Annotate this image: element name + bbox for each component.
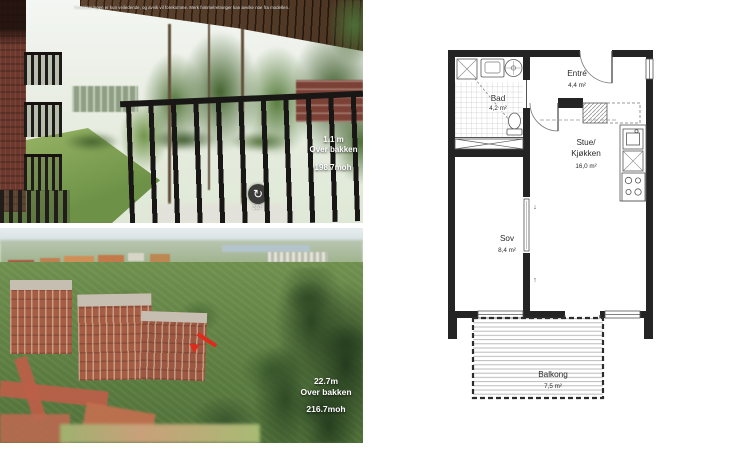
- height-value: 22.7m: [293, 376, 359, 387]
- height-caption: Over bakken: [305, 145, 362, 155]
- aerial-fjord: [222, 245, 310, 252]
- balcony-view-photo[interactable]: Visualiseringen er kun veiledende, og av…: [0, 0, 363, 223]
- wardrobes: [540, 103, 640, 123]
- neighbor-building-facade: [0, 0, 26, 212]
- room-area-entre: 4,4 m²: [568, 82, 586, 89]
- distant-buildings-row: [268, 252, 328, 262]
- neighbor-balcony: [24, 52, 62, 85]
- distant-building: [128, 253, 144, 261]
- foliage-over-roof: [318, 0, 363, 84]
- room-area-balkong: 7,5 m²: [544, 383, 562, 390]
- height-above-ground-label: 1.1 m Over bakken: [305, 135, 362, 155]
- elevation-label: 198.7moh: [303, 163, 363, 173]
- balcony-railing-bars: [126, 94, 363, 223]
- interior-door: [530, 103, 558, 131]
- room-area-sov: 8,4 m²: [498, 247, 516, 254]
- room-label-balkong: Balkong: [538, 370, 568, 379]
- pine-forest-foreground: [190, 268, 363, 443]
- rotate-360-button[interactable]: ↻: [248, 184, 268, 204]
- lower-balcony-railing: [0, 190, 70, 223]
- apartment-block: [10, 280, 72, 354]
- wardrobe-shaft: [455, 139, 523, 149]
- room-label-stue-1: Stue/: [576, 138, 596, 147]
- height-value: 1.1 m: [305, 135, 362, 145]
- door-arrow-down: ↓: [533, 204, 537, 211]
- disclaimer-text: Visualiseringen er kun veiledende, og av…: [0, 5, 363, 10]
- floorplan[interactable]: Bad 4,2 m² Entré 4,4 m² Stue/ Kjøkken 16…: [440, 45, 660, 430]
- room-label-sov: Sov: [500, 234, 515, 243]
- balcony-deck: [473, 318, 603, 398]
- door-arrow-up: ↑: [533, 277, 537, 284]
- sliding-door: [524, 199, 529, 251]
- entrance-door: [580, 51, 612, 83]
- aerial-height-label: 22.7m Over bakken: [293, 376, 359, 397]
- room-label-bad: Bad: [491, 94, 506, 103]
- listing-screen: Visualiseringen er kun veiledende, og av…: [0, 0, 730, 450]
- neighbor-balcony: [24, 102, 62, 137]
- rotate-icon: ↻: [253, 188, 263, 200]
- kitchen-units: [620, 125, 646, 201]
- aerial-elevation-label: 216.7moh: [291, 404, 361, 415]
- room-label-stue-2: Kjøkken: [571, 149, 601, 158]
- neighbor-balcony: [24, 154, 62, 191]
- room-label-entre: Entré: [567, 69, 587, 78]
- floorplan-svg: Bad 4,2 m² Entré 4,4 m² Stue/ Kjøkken 16…: [440, 45, 660, 430]
- room-area-stue: 16,0 m²: [575, 163, 596, 170]
- room-area-bad: 4,2 m²: [489, 105, 507, 112]
- height-caption: Over bakken: [293, 387, 359, 398]
- rotate-360-label: 360°: [244, 205, 272, 211]
- aerial-view-photo[interactable]: 22.7m Over bakken 216.7moh: [0, 228, 363, 443]
